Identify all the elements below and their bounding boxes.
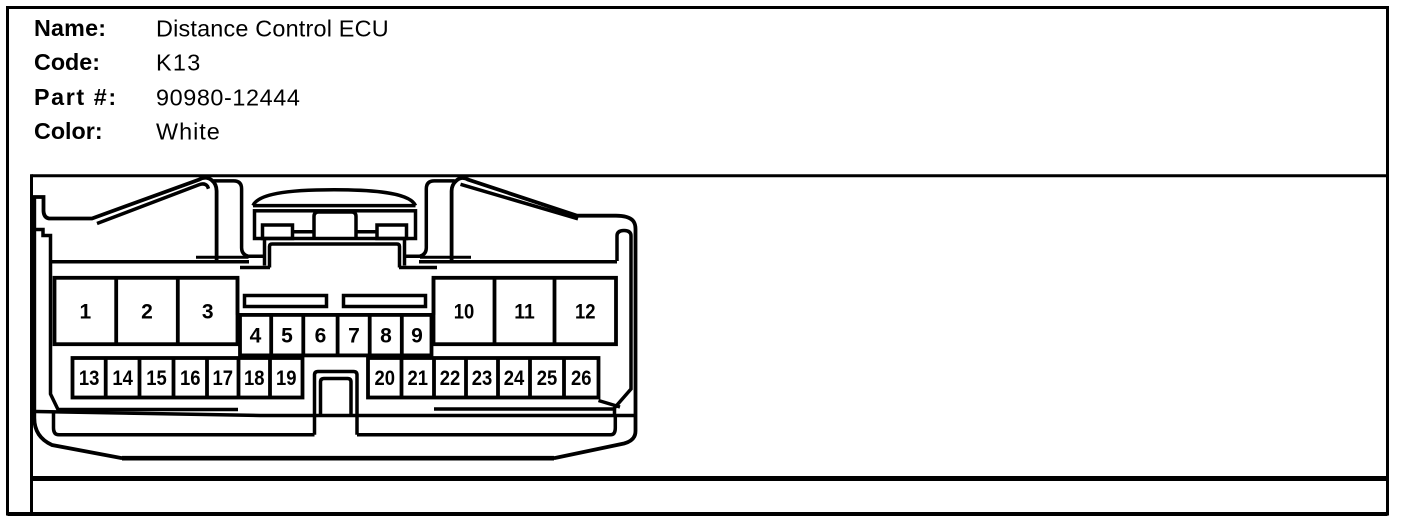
svg-text:1: 1	[80, 301, 92, 324]
svg-text:2: 2	[141, 301, 153, 324]
svg-text:21: 21	[407, 367, 428, 390]
svg-text:6: 6	[315, 325, 327, 348]
svg-text:12: 12	[575, 301, 596, 324]
svg-text:25: 25	[537, 367, 558, 390]
svg-text:10: 10	[454, 301, 475, 324]
svg-text:9: 9	[411, 325, 423, 348]
svg-text:90980-12444: 90980-12444	[156, 85, 300, 111]
svg-text:Distance Control ECU: Distance Control ECU	[156, 16, 389, 42]
svg-text:26: 26	[571, 367, 592, 390]
svg-text:15: 15	[146, 367, 167, 390]
svg-text:22: 22	[440, 367, 461, 390]
svg-text:13: 13	[79, 367, 100, 390]
svg-text:19: 19	[276, 367, 297, 390]
svg-text:11: 11	[514, 301, 535, 324]
svg-text:17: 17	[212, 367, 233, 390]
svg-text:Color:: Color:	[34, 118, 103, 144]
svg-text:24: 24	[504, 367, 525, 390]
svg-text:23: 23	[472, 367, 493, 390]
svg-text:7: 7	[348, 325, 360, 348]
svg-text:20: 20	[374, 367, 395, 390]
svg-text:18: 18	[244, 367, 265, 390]
svg-text:Name:: Name:	[34, 15, 106, 41]
svg-text:3: 3	[202, 301, 214, 324]
svg-text:K13: K13	[156, 50, 202, 76]
svg-text:5: 5	[281, 325, 293, 348]
svg-text:Code:: Code:	[34, 49, 100, 75]
svg-text:16: 16	[180, 367, 201, 390]
svg-text:14: 14	[112, 367, 133, 390]
svg-text:4: 4	[250, 325, 262, 348]
svg-text:White: White	[156, 119, 221, 145]
svg-text:Part #:: Part #:	[34, 84, 118, 110]
svg-text:8: 8	[380, 325, 392, 348]
